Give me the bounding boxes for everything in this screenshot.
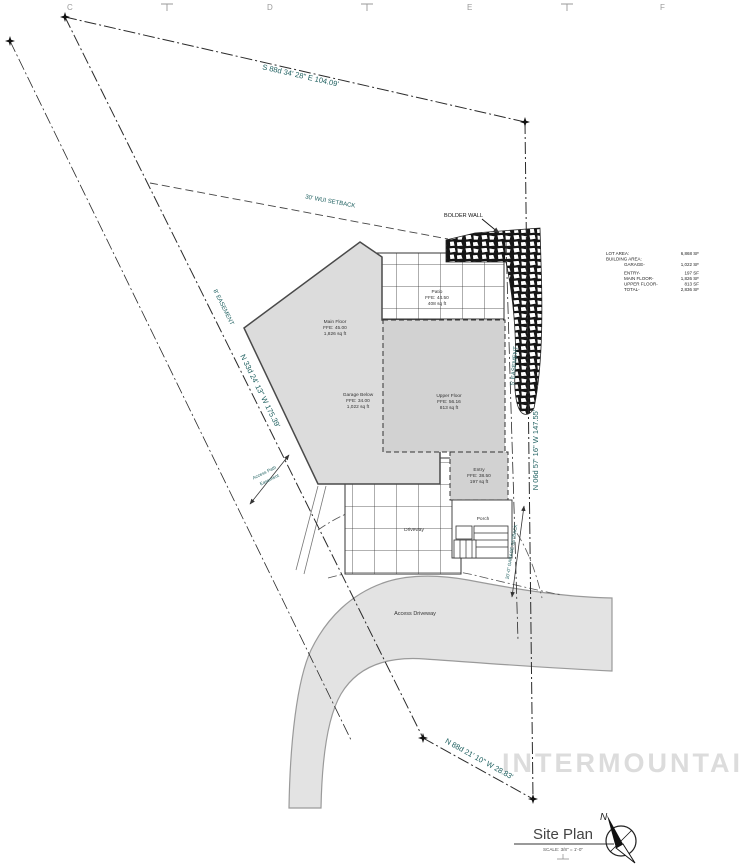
garage-sqft: 1,022 sq ft [347, 404, 370, 410]
grid-letter-d: D [267, 3, 273, 12]
reference-grid: C D E F [67, 3, 665, 12]
main-floor-label: Main Floor [324, 319, 347, 325]
entry-mass: Entry FFE: 38.50 197 sq ft [450, 452, 508, 500]
area-row-value: 1,022 SF [681, 262, 700, 267]
garage-label: Garage Below [343, 392, 374, 398]
wui-setback-line [150, 183, 448, 239]
porch-area: Porch [452, 500, 512, 558]
upper-floor-label: Upper Floor [436, 393, 462, 399]
entry-ffe: FFE: 38.50 [467, 473, 491, 479]
survey-point-icon [520, 117, 530, 127]
upper-floor-ffe: FFE: 56.16 [437, 399, 461, 405]
main-floor-ffe: FFE: 45.00 [323, 325, 347, 331]
grid-letter-e: E [467, 3, 472, 12]
grid-tick-icon [361, 4, 373, 11]
north-label: N [600, 812, 608, 823]
title-block: Site Plan SCALE: 3/8" = 1'-0" [514, 826, 614, 859]
bolder-wall-label: BOLDER WALL [444, 213, 483, 219]
site-plan-drawing: INTERMOUNTAIN C D E F Access Driveway Pa… [0, 0, 741, 868]
patio-area: Patio FFE: 44.50 408 sq ft [372, 253, 504, 319]
north-compass: N [600, 812, 636, 863]
patio-ffe: FFE: 44.50 [425, 295, 449, 301]
north-bearing-label: S 88d 34' 28" E 104.09' [261, 62, 340, 88]
grid-tick-icon [561, 4, 573, 11]
wui-setback-label: 30' WUI SETBACK [305, 194, 356, 209]
east-bearing-label: N 06d 57' 16" W 147.55' [531, 409, 540, 490]
survey-point-icon [60, 12, 70, 22]
survey-point-icon [5, 36, 15, 46]
area-table: LOT AREA: 6,868 SF BUILDING AREA: GARAGE… [606, 251, 699, 292]
area-row-value: 813 SF [684, 282, 699, 287]
area-row-label: UPPER FLOOR- [624, 282, 658, 287]
garage-ffe: FFE: 34.00 [346, 398, 370, 404]
area-row-label: BUILDING AREA: [606, 257, 642, 262]
grid-letter-c: C [67, 3, 73, 12]
sheet-title: Site Plan [533, 826, 593, 843]
area-row-label: LOT AREA: [606, 251, 629, 256]
upper-floor-sqft: 813 sq ft [440, 405, 459, 411]
title-tick-icon [557, 854, 569, 859]
area-row-label: GARAGE- [624, 262, 645, 267]
driveway-label: Driveway [404, 527, 424, 533]
access-driveway-label: Access Driveway [394, 611, 436, 617]
area-row-label: TOTAL- [624, 287, 640, 292]
grid-letter-f: F [660, 3, 665, 12]
area-row-value: 1,826 SF [681, 276, 700, 281]
compass-needle-tail-icon [616, 844, 635, 863]
main-floor-sqft: 1,826 sq ft [324, 331, 347, 337]
watermark-text: INTERMOUNTAIN [502, 748, 741, 778]
entry-label: Entry [473, 467, 485, 473]
west-easement-label: 8' EASEMENT [212, 289, 235, 327]
area-row-value: 6,868 SF [681, 251, 700, 256]
area-row-label: MAIN FLOOR- [624, 276, 654, 281]
scale-note: SCALE: 3/8" = 1'-0" [543, 847, 583, 852]
patio-sqft: 408 sq ft [428, 301, 447, 307]
area-row-value: 2,836 SF [681, 287, 700, 292]
survey-point-icon [528, 794, 538, 804]
porch-label: Porch [477, 516, 490, 522]
area-row-label: ENTRY- [624, 271, 641, 276]
site-plan-page: INTERMOUNTAIN C D E F Access Driveway Pa… [0, 0, 741, 868]
patio-label: Patio [432, 289, 443, 295]
entry-sqft: 197 sq ft [470, 479, 489, 485]
survey-point-icon [418, 733, 428, 743]
retaining-wall-lines [296, 486, 326, 574]
area-row-value: 197 SF [684, 271, 699, 276]
grid-tick-icon [161, 4, 173, 11]
upper-floor-mass: Upper Floor FFE: 56.16 813 sq ft [383, 320, 505, 452]
bolder-wall-arrow-icon [482, 219, 499, 233]
